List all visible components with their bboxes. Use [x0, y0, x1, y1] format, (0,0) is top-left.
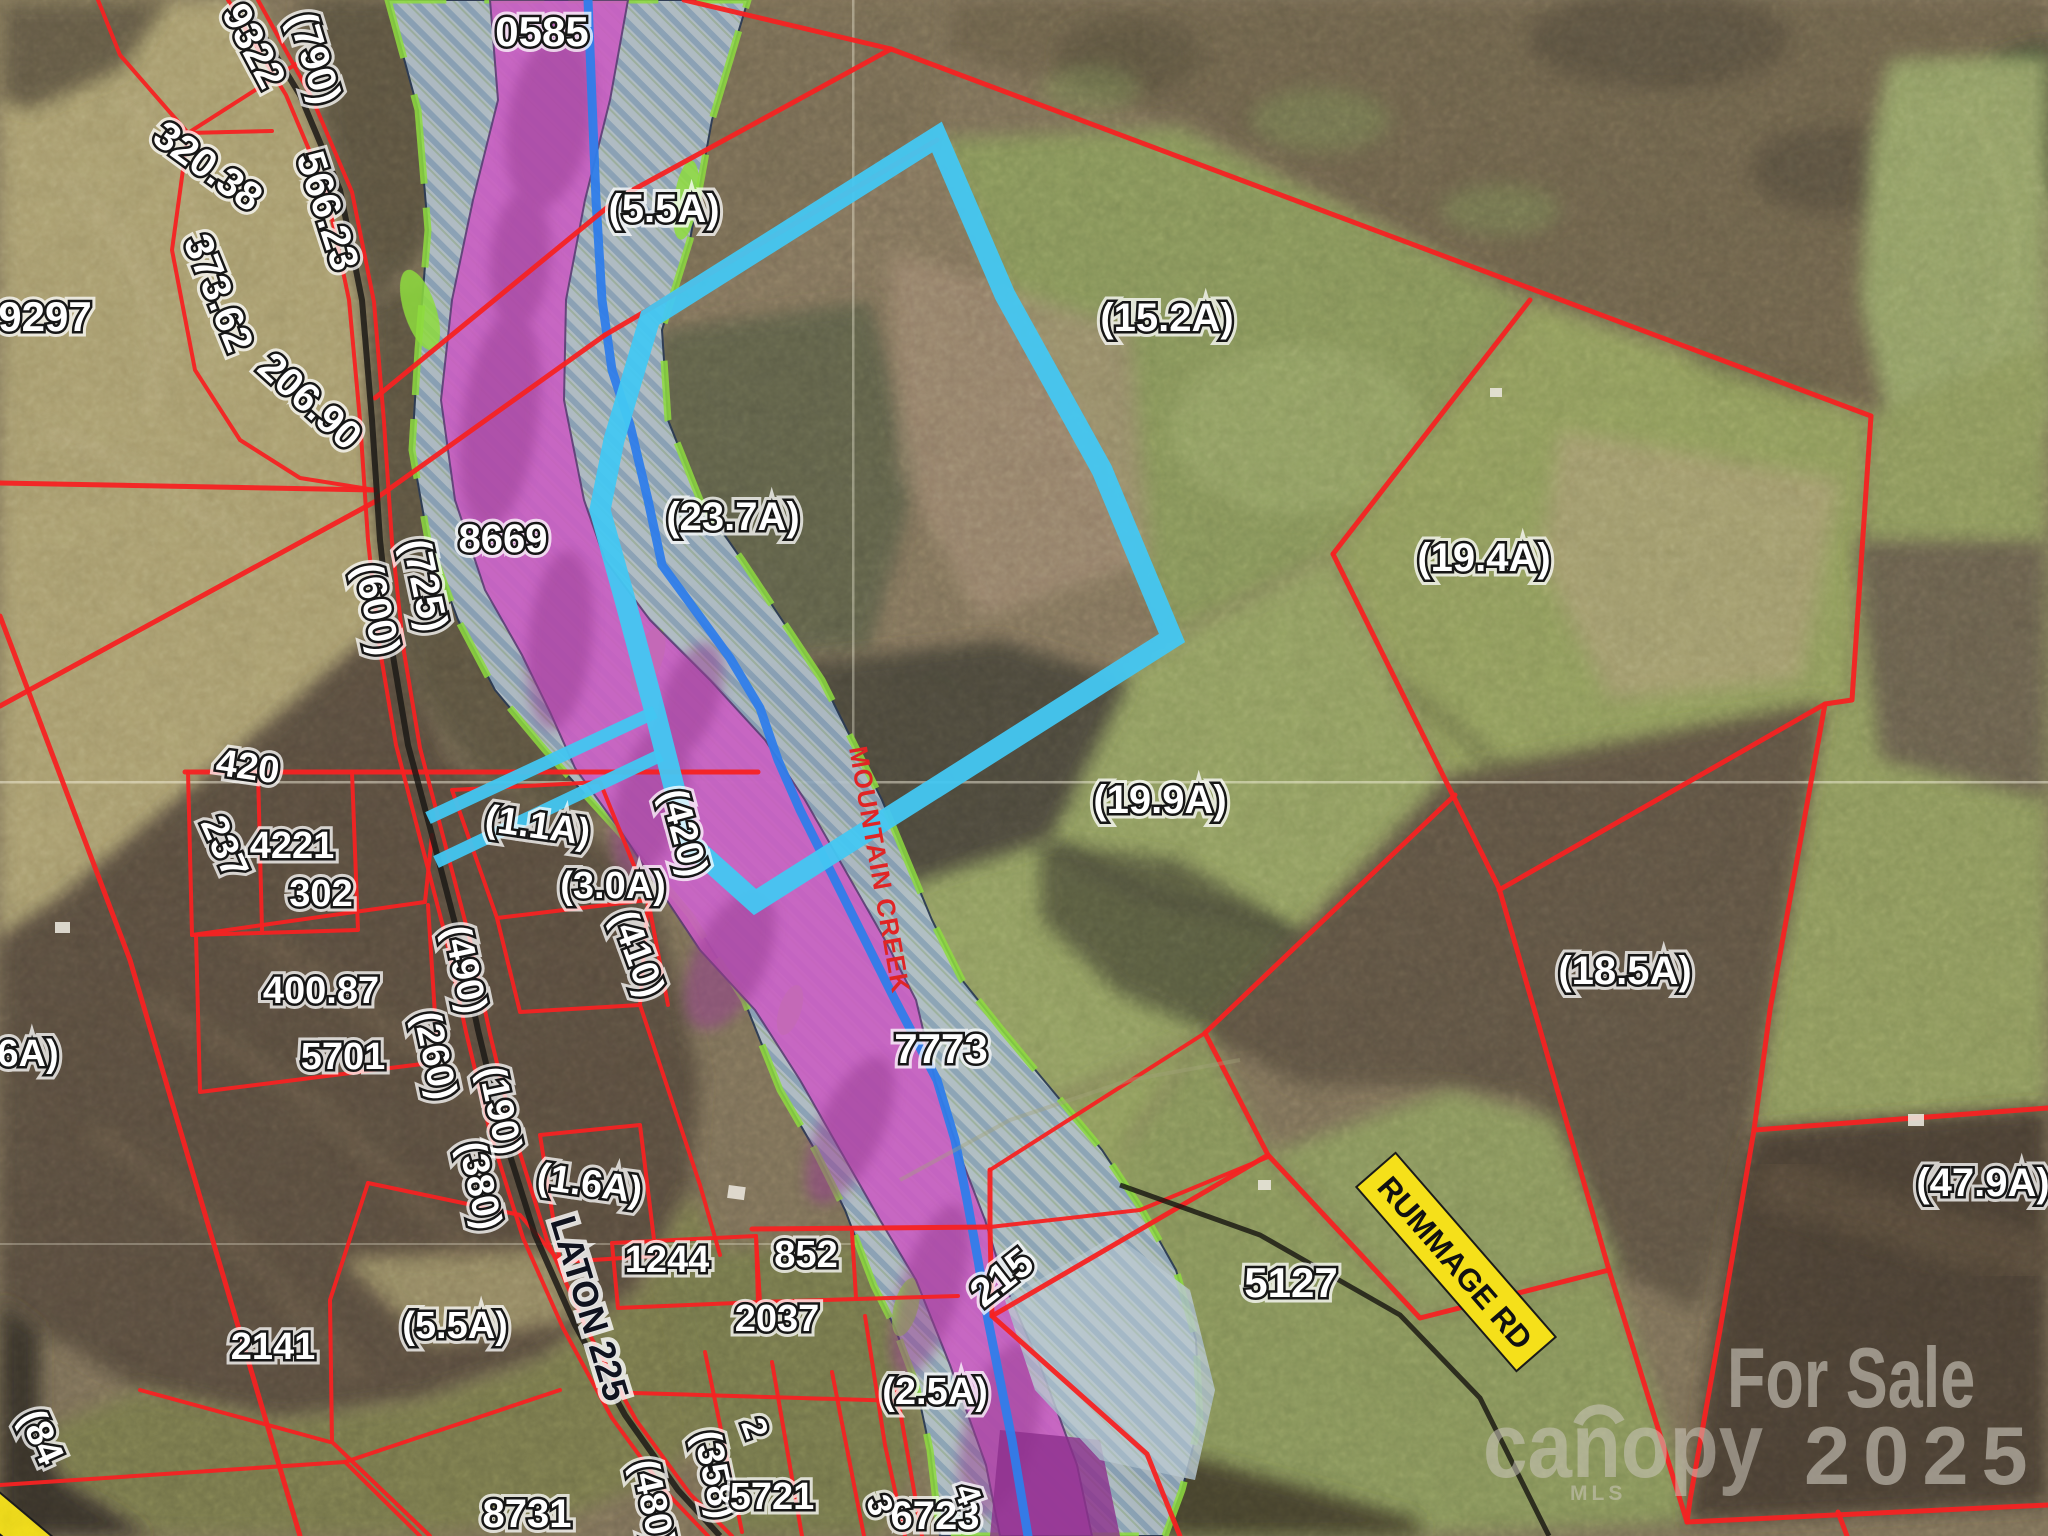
svg-text:(47.9A): (47.9A)	[1916, 1161, 2048, 1205]
svg-text:2037: 2037	[735, 1298, 820, 1340]
svg-text:8669: 8669	[459, 517, 548, 561]
svg-text:400.87: 400.87	[263, 970, 379, 1012]
svg-text:(3.0A): (3.0A)	[560, 865, 666, 907]
svg-text:0585: 0585	[495, 8, 588, 55]
svg-text:(2.5A): (2.5A)	[882, 1371, 988, 1413]
svg-text:(19.9A): (19.9A)	[1093, 778, 1226, 822]
svg-text:(5.5A): (5.5A)	[402, 1305, 508, 1347]
svg-text:6A): 6A)	[0, 1033, 59, 1075]
svg-text:(19.4A): (19.4A)	[1417, 536, 1550, 580]
svg-text:(15.2A): (15.2A)	[1100, 296, 1233, 340]
svg-text:302: 302	[289, 873, 352, 915]
svg-text:7773: 7773	[894, 1025, 987, 1072]
svg-text:MLS: MLS	[1570, 1482, 1626, 1505]
svg-text:(23.7A): (23.7A)	[666, 495, 799, 539]
svg-text:5721: 5721	[730, 1476, 815, 1518]
svg-text:5701: 5701	[301, 1036, 386, 1078]
svg-text:(5.5A): (5.5A)	[608, 187, 719, 231]
svg-text:1244: 1244	[625, 1239, 710, 1281]
svg-text:8731: 8731	[483, 1492, 572, 1536]
svg-text:2025: 2025	[1804, 1409, 2041, 1502]
svg-text:420: 420	[213, 742, 282, 792]
svg-text:4221: 4221	[250, 825, 335, 867]
svg-text:5127: 5127	[1244, 1259, 1337, 1306]
svg-text:9297: 9297	[0, 293, 92, 340]
svg-text:2141: 2141	[231, 1326, 316, 1368]
svg-text:852: 852	[774, 1234, 837, 1276]
svg-text:(18.5A): (18.5A)	[1558, 949, 1691, 993]
